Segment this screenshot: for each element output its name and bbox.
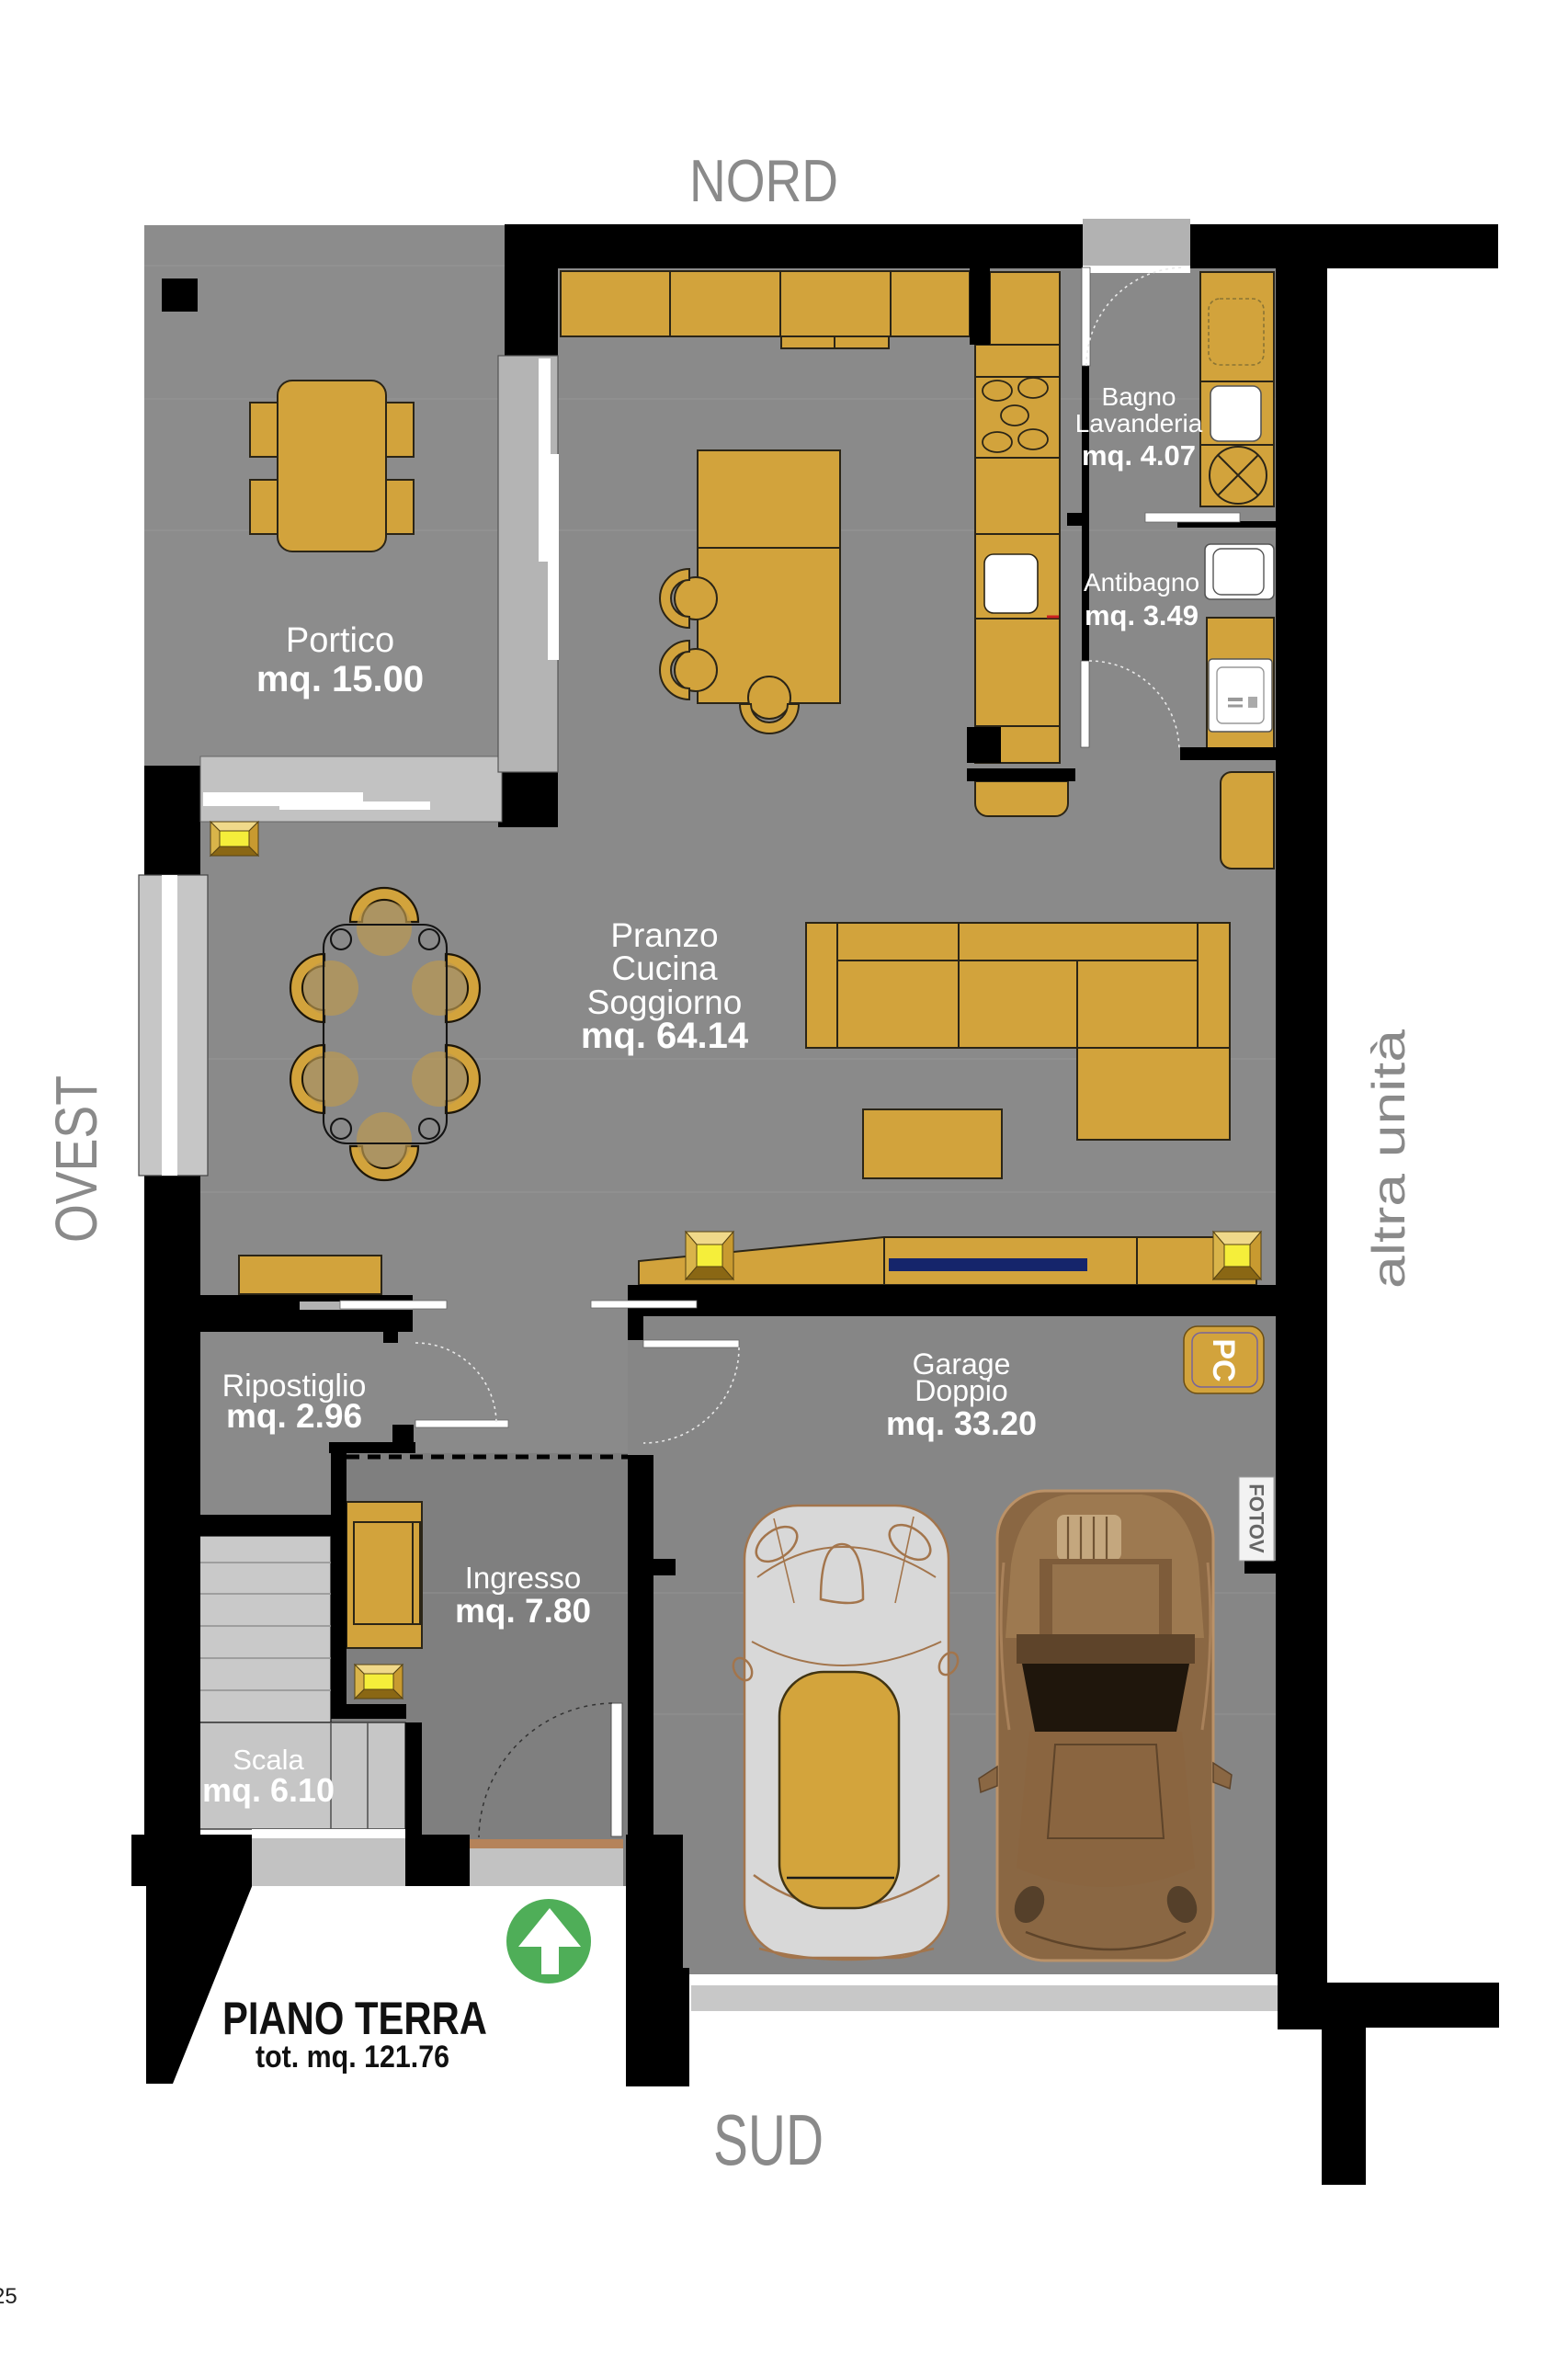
svg-text:Lavanderia: Lavanderia: [1075, 409, 1203, 438]
svg-text:Pranzo: Pranzo: [610, 916, 718, 954]
svg-text:FOTOV: FOTOV: [1245, 1483, 1268, 1553]
svg-text:mq. 4.07: mq. 4.07: [1082, 439, 1196, 472]
svg-text:altra unità: altra unità: [1363, 1029, 1415, 1289]
svg-text:mq. 33.20: mq. 33.20: [886, 1404, 1037, 1442]
svg-text:mq. 3.49: mq. 3.49: [1085, 599, 1199, 631]
svg-text:Doppio: Doppio: [915, 1374, 1007, 1407]
svg-text:PIANO TERRA: PIANO TERRA: [222, 1993, 487, 2044]
svg-text:Ingresso: Ingresso: [465, 1561, 582, 1595]
svg-text:PC: PC: [1206, 1338, 1241, 1381]
svg-text:OVEST: OVEST: [43, 1075, 109, 1243]
svg-text:SUD: SUD: [713, 2099, 824, 2180]
svg-text:Bagno: Bagno: [1102, 382, 1176, 411]
svg-text:Antibagno: Antibagno: [1084, 568, 1199, 597]
svg-text:NORD: NORD: [689, 147, 838, 214]
svg-text:mq. 2.96: mq. 2.96: [226, 1397, 362, 1435]
svg-text:tot. mq. 121.76: tot. mq. 121.76: [256, 2040, 449, 2075]
svg-text:mq. 64.14: mq. 64.14: [581, 1016, 749, 1056]
svg-text:25: 25: [0, 2284, 17, 2309]
svg-text:mq. 15.00: mq. 15.00: [256, 659, 424, 699]
svg-text:mq. 7.80: mq. 7.80: [455, 1592, 591, 1630]
svg-text:Portico: Portico: [286, 621, 394, 660]
svg-text:mq. 6.10: mq. 6.10: [202, 1771, 335, 1809]
svg-text:Cucina: Cucina: [611, 949, 718, 987]
